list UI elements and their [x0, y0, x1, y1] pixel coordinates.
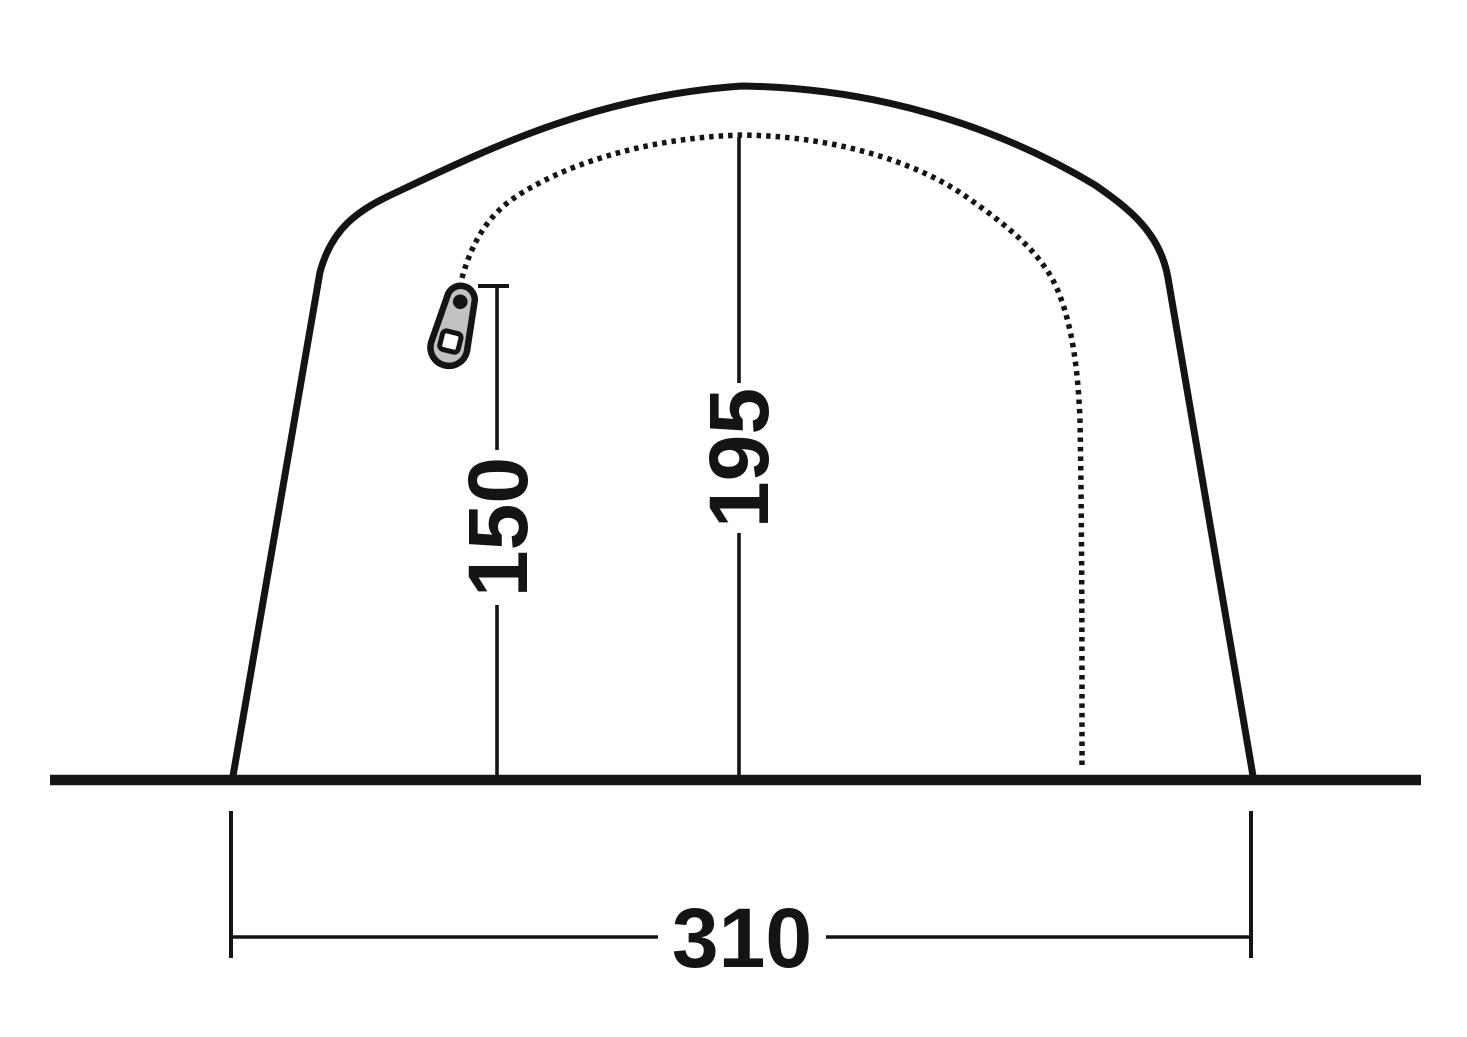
- zipper-pull-hole: [439, 330, 462, 353]
- dimension-peak-height: 195: [692, 137, 786, 776]
- dimension-base-width: 310: [231, 811, 1251, 985]
- dimension-peak-height-label: 195: [692, 388, 786, 528]
- dimension-door-height-label: 150: [451, 457, 545, 597]
- tent-dimension-diagram: 150 195 310: [0, 0, 1467, 1037]
- diagram-canvas: 150 195 310: [0, 0, 1467, 1037]
- dimension-base-width-label: 310: [672, 891, 812, 985]
- zipper-pull-body: [426, 282, 482, 370]
- zipper-pull-icon: [426, 282, 482, 370]
